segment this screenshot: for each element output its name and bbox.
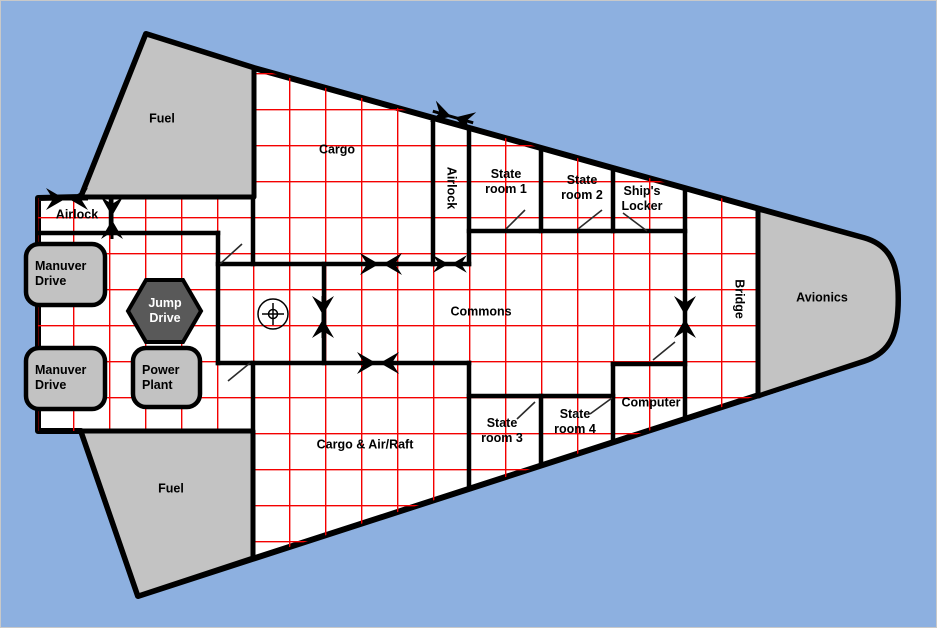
power-plant-box bbox=[133, 348, 200, 407]
avionics-bay bbox=[758, 209, 898, 396]
jump-drive-hexagon bbox=[128, 280, 201, 342]
deck-plan-canvas: Fuel Fuel Airlock Cargo Airlock State ro… bbox=[0, 0, 937, 628]
fuel-tank-top bbox=[81, 34, 254, 197]
turret-crosshair-icon bbox=[258, 299, 288, 329]
manuver-drive-1-box bbox=[26, 244, 105, 305]
deck-plan-drawing bbox=[1, 1, 937, 628]
manuver-drive-2-box bbox=[26, 348, 105, 409]
